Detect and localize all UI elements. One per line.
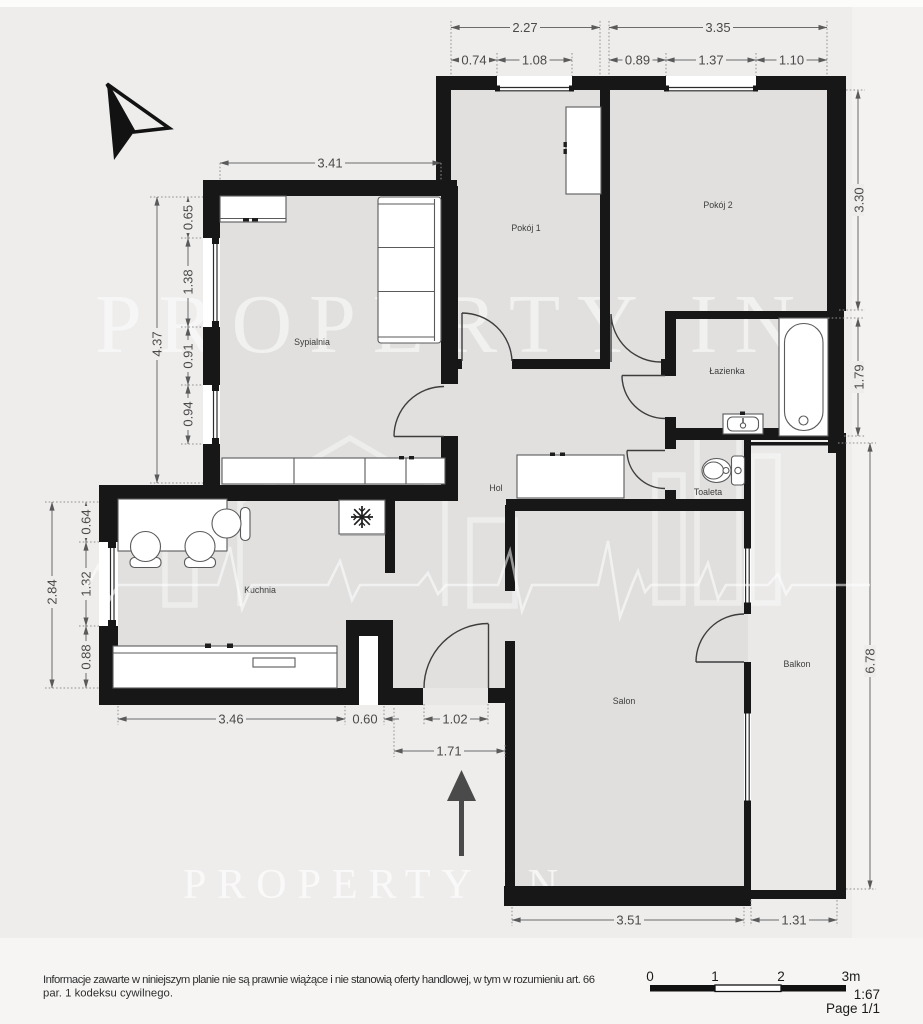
svg-text:Informacje zawarte w niniejszy: Informacje zawarte w niniejszym planie n…: [43, 974, 595, 986]
svg-text:0.91: 0.91: [181, 343, 196, 368]
svg-text:1:67: 1:67: [854, 987, 880, 1002]
svg-text:Hol: Hol: [489, 483, 502, 493]
svg-text:4.37: 4.37: [150, 331, 165, 356]
svg-text:3.35: 3.35: [705, 20, 730, 35]
svg-text:3m: 3m: [842, 969, 861, 984]
svg-text:1: 1: [711, 969, 719, 984]
svg-text:1.02: 1.02: [442, 712, 467, 727]
svg-text:PROPERTY IN: PROPERTY IN: [183, 862, 558, 908]
svg-text:Pokój 2: Pokój 2: [703, 200, 732, 210]
svg-text:3.41: 3.41: [317, 156, 342, 171]
svg-text:0.74: 0.74: [461, 53, 486, 68]
svg-text:0.89: 0.89: [625, 53, 650, 68]
svg-text:1.71: 1.71: [436, 744, 461, 759]
svg-text:6.78: 6.78: [863, 648, 878, 673]
svg-text:3.51: 3.51: [616, 913, 641, 928]
svg-text:1.08: 1.08: [522, 53, 547, 68]
svg-text:0: 0: [646, 969, 654, 984]
svg-text:3.30: 3.30: [852, 187, 867, 212]
svg-text:par. 1 kodeksu cywilnego.: par. 1 kodeksu cywilnego.: [43, 988, 173, 1000]
svg-text:0.65: 0.65: [181, 205, 196, 230]
svg-text:Balkon: Balkon: [784, 659, 811, 669]
svg-text:1.31: 1.31: [781, 913, 806, 928]
svg-text:0.60: 0.60: [352, 712, 377, 727]
svg-text:0.64: 0.64: [79, 509, 94, 534]
svg-text:Sypialnia: Sypialnia: [294, 337, 330, 347]
svg-text:1.37: 1.37: [698, 53, 723, 68]
svg-text:1.79: 1.79: [852, 364, 867, 389]
svg-text:0.88: 0.88: [79, 644, 94, 669]
svg-text:2.84: 2.84: [45, 579, 60, 604]
svg-text:1.10: 1.10: [779, 53, 804, 68]
svg-text:Pokój 1: Pokój 1: [511, 223, 540, 233]
svg-text:2.27: 2.27: [512, 20, 537, 35]
svg-text:Toaleta: Toaleta: [694, 487, 722, 497]
svg-text:Łazienka: Łazienka: [709, 366, 744, 376]
svg-text:1.38: 1.38: [181, 269, 196, 294]
svg-text:Salon: Salon: [613, 696, 636, 706]
svg-text:0.94: 0.94: [181, 401, 196, 426]
svg-text:2: 2: [777, 969, 785, 984]
svg-text:3.46: 3.46: [218, 712, 243, 727]
svg-text:Page 1/1: Page 1/1: [826, 1001, 880, 1016]
